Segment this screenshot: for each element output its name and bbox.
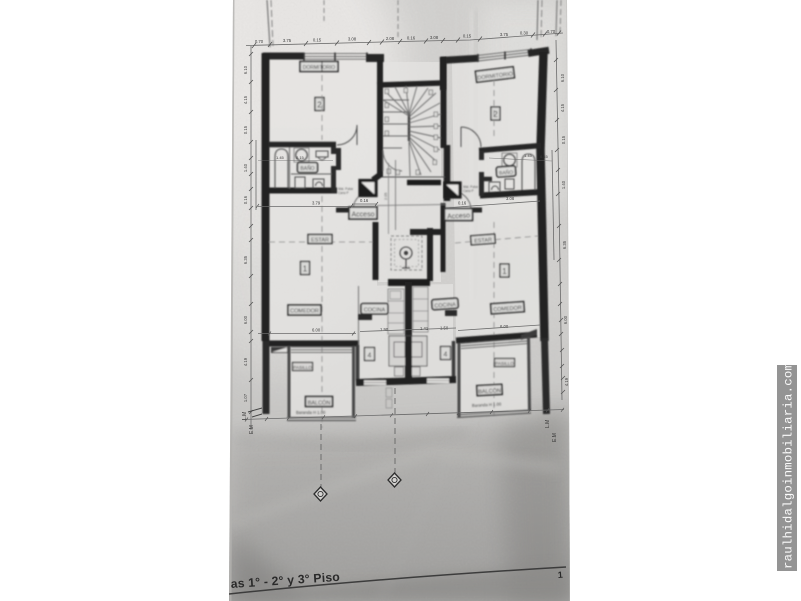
svg-text:4: 4 [368, 353, 372, 360]
svg-text:PASILLO: PASILLO [495, 361, 514, 366]
svg-text:4.15: 4.15 [243, 95, 248, 104]
svg-text:2: 2 [317, 101, 322, 110]
svg-text:3.79: 3.79 [312, 201, 321, 206]
svg-text:6.10: 6.10 [560, 73, 565, 82]
svg-text:6.00: 6.00 [243, 315, 248, 324]
svg-text:6.00: 6.00 [563, 315, 568, 324]
svg-text:0.15: 0.15 [243, 125, 248, 134]
svg-text:ESTAR: ESTAR [311, 238, 329, 244]
svg-text:COMEDOR: COMEDOR [290, 309, 319, 315]
svg-text:3.75: 3.75 [500, 32, 509, 37]
svg-text:0.15: 0.15 [561, 135, 566, 144]
svg-text:1.45: 1.45 [524, 153, 533, 158]
svg-text:4.19: 4.19 [243, 357, 248, 366]
svg-text:COCINA: COCINA [364, 308, 386, 314]
svg-text:BAÑO: BAÑO [300, 165, 314, 172]
svg-text:E.M: E.M [552, 433, 558, 442]
svg-text:1: 1 [502, 267, 507, 276]
svg-text:0.15: 0.15 [463, 34, 472, 39]
svg-text:4.15: 4.15 [560, 103, 565, 112]
svg-text:1.40: 1.40 [561, 180, 566, 189]
svg-text:1.45: 1.45 [276, 155, 285, 160]
svg-text:DORMITORIO: DORMITORIO [303, 65, 336, 71]
svg-text:2.05: 2.05 [384, 193, 388, 200]
svg-text:6.00: 6.00 [312, 328, 321, 333]
svg-text:0.16: 0.16 [407, 35, 416, 40]
svg-text:Acceso: Acceso [352, 212, 375, 219]
svg-text:0.16: 0.16 [458, 201, 467, 206]
svg-text:0.70: 0.70 [547, 29, 556, 34]
svg-text:ESTAR: ESTAR [474, 237, 492, 244]
svg-text:1.90: 1.90 [380, 327, 389, 332]
svg-text:BALCÓN: BALCÓN [478, 387, 501, 395]
svg-text:4.19: 4.19 [564, 377, 569, 386]
svg-text:Acceso: Acceso [447, 212, 470, 220]
svg-text:BAÑO: BAÑO [499, 169, 514, 177]
svg-text:6.35: 6.35 [243, 255, 248, 264]
svg-text:6.00: 6.00 [500, 324, 509, 329]
svg-text:1: 1 [557, 570, 563, 580]
svg-text:0.16: 0.16 [243, 195, 248, 204]
svg-text:L.M: L.M [545, 420, 551, 428]
svg-text:1.41: 1.41 [420, 326, 429, 331]
svg-text:L.M: L.M [242, 412, 248, 420]
svg-text:Baranda H 1.00: Baranda H 1.00 [296, 410, 326, 415]
svg-text:PASILLO: PASILLO [293, 365, 312, 370]
svg-text:0.15: 0.15 [296, 155, 305, 160]
svg-text:4: 4 [444, 352, 448, 359]
svg-text:6.10: 6.10 [243, 65, 248, 74]
svg-text:0.30: 0.30 [520, 31, 529, 36]
svg-text:1: 1 [303, 265, 308, 274]
svg-text:0.16: 0.16 [360, 198, 369, 203]
svg-text:3.08: 3.08 [506, 196, 515, 201]
svg-text:E.M: E.M [249, 425, 255, 434]
svg-text:1.40: 1.40 [243, 163, 248, 172]
svg-text:3.08: 3.08 [430, 35, 439, 40]
svg-text:raulhidalgoinmobiliaria.com: raulhidalgoinmobiliaria.com [782, 363, 796, 569]
svg-text:Cano P: Cano P [338, 191, 349, 195]
svg-text:Cano P: Cano P [463, 189, 474, 193]
svg-text:0.70: 0.70 [255, 39, 264, 44]
svg-text:BALCÓN: BALCÓN [308, 399, 331, 406]
svg-text:1.07: 1.07 [243, 393, 248, 402]
svg-text:2.08: 2.08 [386, 36, 395, 41]
svg-text:3.75: 3.75 [283, 38, 292, 43]
svg-text:0.15: 0.15 [540, 154, 549, 159]
svg-text:3.08: 3.08 [348, 37, 357, 42]
svg-text:0.15: 0.15 [313, 37, 322, 42]
svg-text:6.35: 6.35 [562, 240, 567, 249]
